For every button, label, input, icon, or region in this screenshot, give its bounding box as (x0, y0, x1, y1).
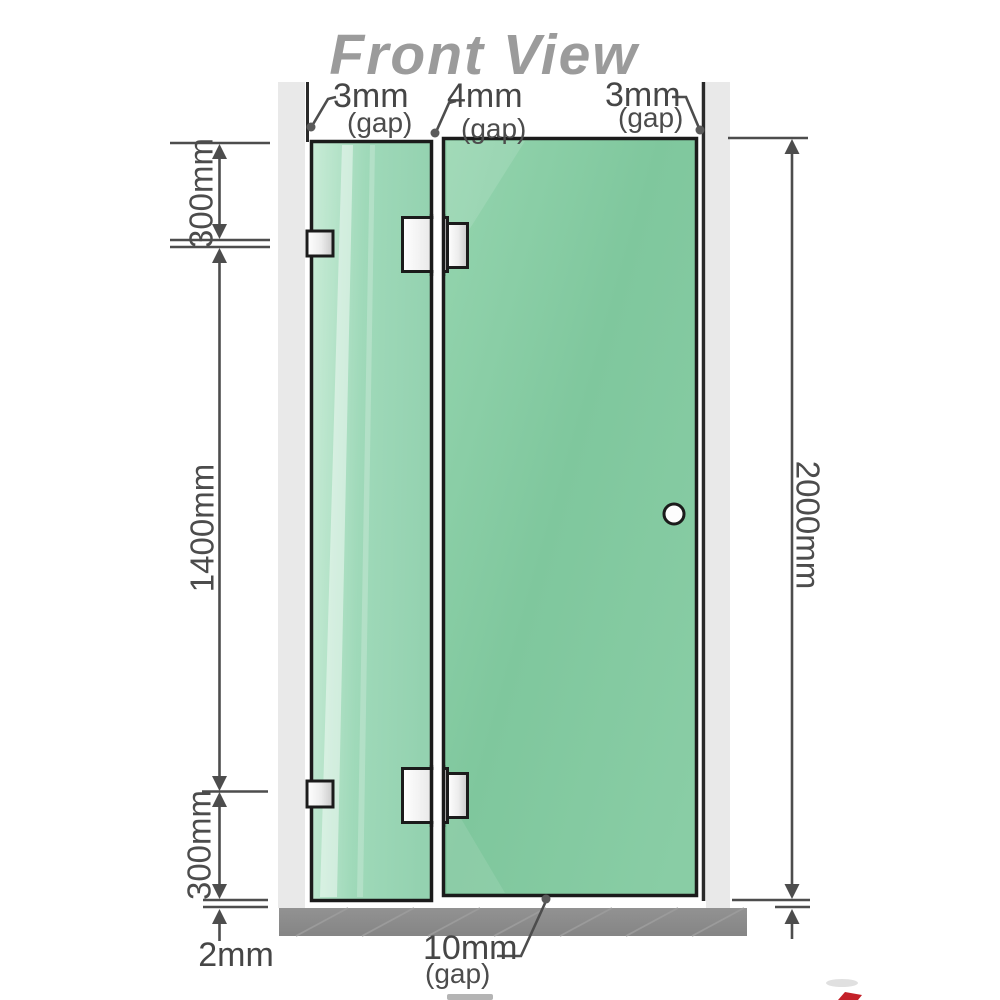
gap-suffix-top-left: (gap) (347, 107, 412, 138)
gap-suffix-top-right: (gap) (618, 102, 683, 133)
cutoff-logo-smudge (826, 979, 858, 987)
arrowhead-up (785, 139, 800, 154)
arrowhead-down (212, 776, 227, 791)
gap-suffix-bottom: (gap) (425, 958, 490, 989)
leader-dot (307, 123, 316, 132)
cutoff-red-ribbon (838, 992, 862, 1000)
door-handle-knob (664, 504, 684, 524)
hinge-top (403, 214, 468, 276)
cutoff-watermark-smudge (447, 994, 493, 1000)
dim-label-300-bottom: 300mm (181, 790, 218, 900)
arrowhead-up (212, 909, 227, 924)
wall-bracket-bottom (307, 781, 333, 807)
arrowhead-down (785, 884, 800, 899)
hinge-bottom (403, 765, 468, 827)
wall-post-left (278, 82, 305, 908)
dim-label-300-top: 300mm (183, 138, 220, 248)
wall-post-right (706, 82, 730, 908)
hinge-plate-right (448, 224, 468, 268)
wall-bracket-top (307, 231, 333, 256)
hinge-gap-strip (433, 765, 442, 827)
dim-label-2000: 2000mm (789, 461, 826, 589)
arrowhead-up (785, 909, 800, 924)
dimension-right-total: 2000mm (728, 138, 826, 939)
hinge-gap-strip (433, 214, 442, 276)
gap-suffix-top-middle: (gap) (461, 113, 526, 144)
dim-label-1400: 1400mm (184, 464, 221, 592)
glass-panel-door (444, 139, 697, 896)
shower-screen-front-view-diagram: Front View (0, 0, 1000, 1000)
gap-callout-top-right: 3mm (gap) (605, 76, 705, 135)
dim-label-2mm: 2mm (198, 936, 274, 974)
leader-dot (696, 126, 705, 135)
leader-dot (431, 129, 440, 138)
hinge-plate-right (448, 774, 468, 818)
gap-value-top-middle: 4mm (447, 77, 523, 115)
leader-dot (542, 895, 551, 904)
front-view-diagram-page: Front View (0, 0, 1000, 1000)
glass-panel-door-pane (444, 139, 697, 896)
gap-callout-top-left: 3mm (gap) (307, 77, 413, 138)
gap-callout-top-middle: 4mm (gap) (431, 77, 527, 144)
arrowhead-up (212, 248, 227, 263)
dimension-left-chain: 300mm 1400mm 300mm 2mm (170, 138, 274, 974)
